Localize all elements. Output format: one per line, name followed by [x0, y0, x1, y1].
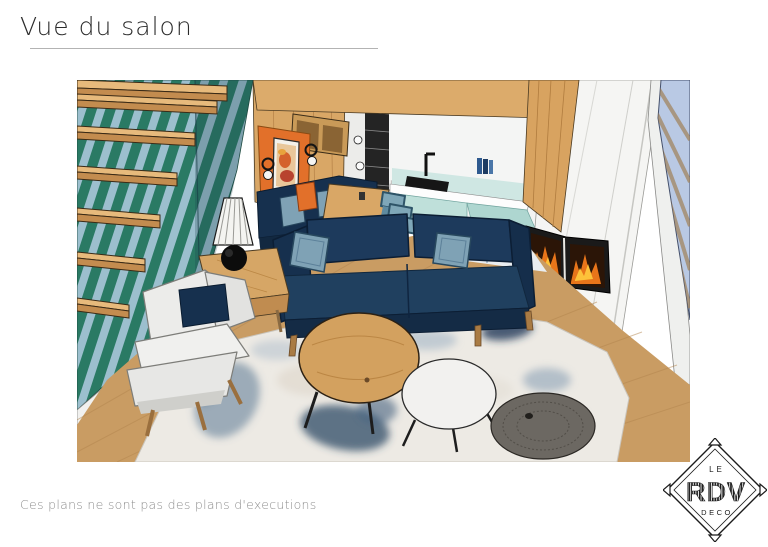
- pouf: [491, 393, 595, 459]
- sofa-pillow: [290, 232, 329, 272]
- brand-logo: LE RDV DECO: [663, 438, 767, 542]
- hall-wall-lamp: [356, 162, 364, 170]
- hall-wall-lamp: [354, 136, 362, 144]
- logo-text-rdv: RDV: [686, 477, 746, 507]
- living-room-render: [77, 80, 690, 462]
- sofa-pillow: [433, 233, 471, 268]
- cushion-orange: [296, 182, 317, 211]
- page-title: Vue du salon: [20, 12, 193, 41]
- window: [648, 80, 690, 385]
- footer-disclaimer: Ces plans ne sont pas des plans d'execut…: [20, 497, 317, 512]
- render-3d-scene: [77, 80, 690, 462]
- armchair-pillow: [179, 284, 229, 327]
- logo-text-deco: DECO: [701, 508, 733, 517]
- lamp-base: [221, 245, 247, 271]
- logo-text-le: LE: [709, 465, 725, 474]
- title-underline: [30, 48, 378, 49]
